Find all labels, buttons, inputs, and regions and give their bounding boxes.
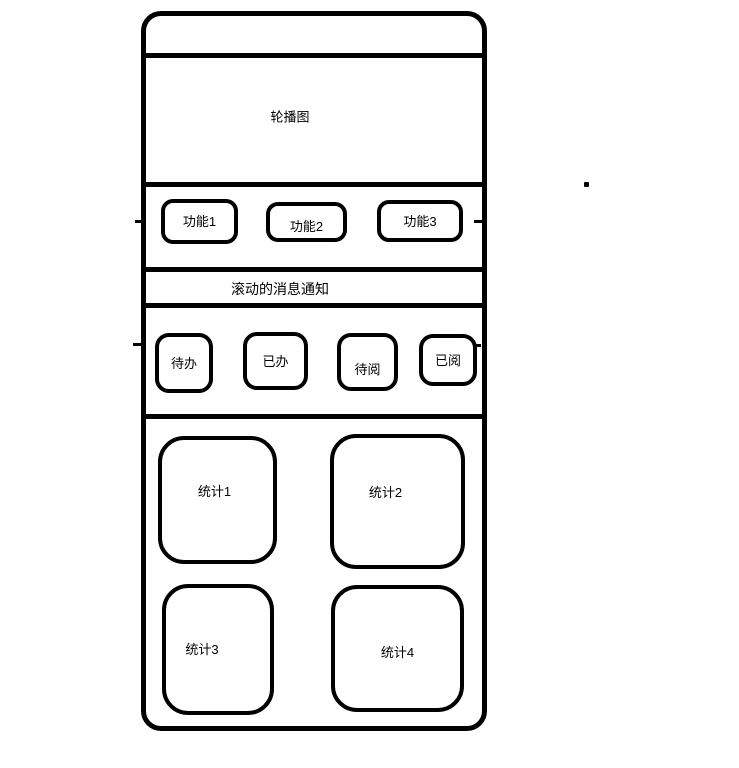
stat-card-2-label: 统计2	[369, 486, 402, 499]
stat-card-2[interactable]: 统计2	[330, 434, 465, 569]
carousel-bottom-divider	[141, 182, 487, 187]
connector-tick-left-2	[133, 343, 142, 346]
connector-tick-left-1	[135, 220, 143, 223]
status-bar	[146, 16, 482, 53]
notice-bar-label: 滚动的消息通知	[231, 282, 329, 296]
function-button-3-label: 功能3	[403, 215, 436, 228]
function-button-3[interactable]: 功能3	[377, 200, 463, 242]
function-button-2[interactable]: 功能2	[266, 202, 347, 242]
action-button-read-label: 已阅	[435, 354, 461, 367]
action-button-toread[interactable]: 待阅	[337, 333, 398, 391]
wireframe-canvas: 轮播图 功能1 功能2 功能3 滚动的消息通知 待办 已办 待阅 已阅 统计1 …	[0, 0, 739, 768]
connector-tick-right-1	[474, 220, 482, 223]
carousel-label: 轮播图	[270, 111, 309, 124]
stray-dot	[584, 182, 589, 187]
action-button-read[interactable]: 已阅	[419, 334, 477, 386]
action-button-toread-label: 待阅	[354, 363, 380, 376]
carousel-region[interactable]	[146, 58, 482, 182]
notice-bar-bottom-divider	[141, 303, 487, 308]
connector-tick-right-2	[473, 344, 481, 347]
function-button-2-label: 功能2	[290, 220, 323, 233]
action-button-done-label: 已办	[262, 355, 288, 368]
function-button-1-label: 功能1	[183, 215, 216, 228]
stat-card-3-label: 统计3	[185, 643, 218, 656]
action-button-todo[interactable]: 待办	[155, 333, 213, 393]
action-row-bottom-divider	[141, 414, 487, 419]
stat-card-1-label: 统计1	[198, 485, 231, 498]
function-button-1[interactable]: 功能1	[161, 199, 238, 244]
action-button-done[interactable]: 已办	[243, 332, 308, 390]
stat-card-4[interactable]: 统计4	[331, 585, 464, 712]
action-button-todo-label: 待办	[171, 357, 197, 370]
stat-card-1[interactable]: 统计1	[158, 436, 277, 564]
stat-card-4-label: 统计4	[381, 646, 414, 659]
stat-card-3[interactable]: 统计3	[162, 584, 274, 715]
